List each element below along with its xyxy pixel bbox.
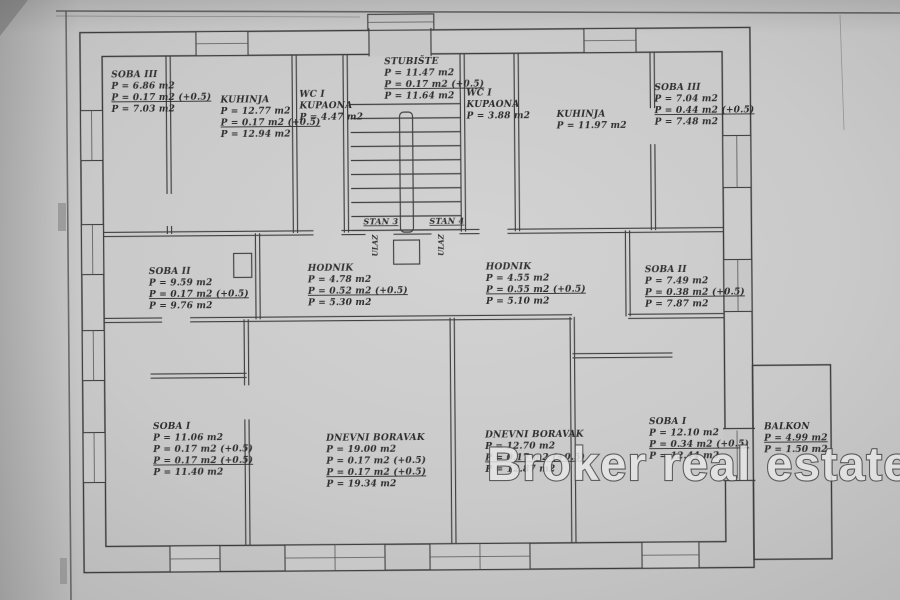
- wall: [151, 373, 247, 374]
- apartment-label-stan3: STAN 3: [363, 216, 398, 226]
- wall: [244, 319, 245, 385]
- entry-opening: [369, 28, 431, 56]
- wall: [630, 230, 631, 316]
- entry-step-line: [368, 22, 434, 23]
- wall: [260, 233, 261, 319]
- scan-smudge-2: [60, 558, 67, 584]
- watermark: Broker real estate: [487, 437, 900, 490]
- apartment-label-stan4: STAN 4: [429, 216, 464, 226]
- wall: [255, 233, 256, 319]
- scan-smudge-1: [58, 203, 66, 231]
- wall: [572, 357, 672, 358]
- wall: [151, 377, 247, 378]
- wall: [625, 230, 626, 316]
- wall: [628, 318, 724, 319]
- wall: [572, 353, 672, 354]
- wall: [651, 144, 652, 230]
- wall: [248, 319, 249, 385]
- entrance-label-right: ULAZ: [436, 233, 445, 256]
- entrance-label-left: ULAZ: [370, 234, 379, 257]
- wall: [628, 314, 724, 315]
- top-edge-shadow: [0, 0, 900, 34]
- wall: [655, 144, 656, 230]
- floor-plan-scan: SOBA IIIP = 6.86 m2P = 0.17 m2 (+0.5)P =…: [0, 0, 900, 600]
- floor-plan-svg: SOBA IIIP = 6.86 m2P = 0.17 m2 (+0.5)P =…: [0, 0, 900, 600]
